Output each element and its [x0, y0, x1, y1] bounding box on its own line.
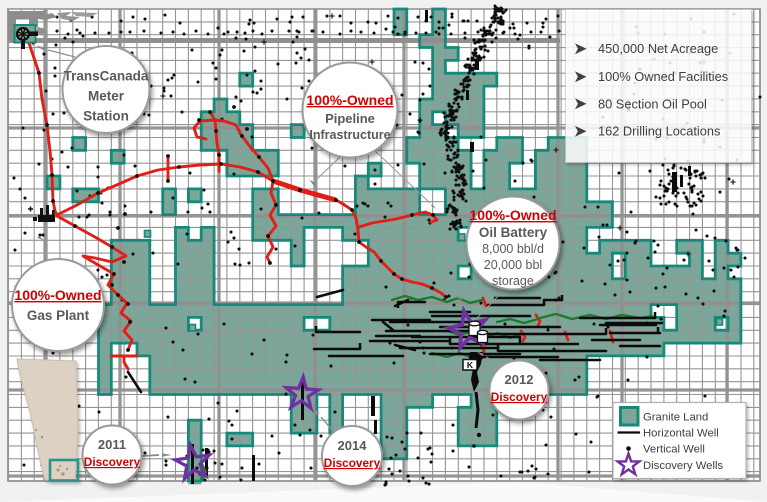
- svg-text:Pipeline: Pipeline: [325, 111, 375, 126]
- svg-text:➤: ➤: [574, 69, 587, 86]
- svg-text:Discovery: Discovery: [84, 455, 141, 469]
- svg-text:Gas Plant: Gas Plant: [27, 308, 90, 323]
- svg-text:2012: 2012: [505, 372, 534, 387]
- svg-text:100%-Owned: 100%-Owned: [469, 207, 556, 223]
- svg-text:Discovery: Discovery: [491, 390, 548, 404]
- svg-text:Horizontal Well: Horizontal Well: [643, 428, 719, 440]
- svg-text:Infrastructure: Infrastructure: [309, 128, 390, 142]
- svg-text:80 Section Oil Pool: 80 Section Oil Pool: [598, 96, 707, 111]
- svg-text:TransCanada: TransCanada: [64, 69, 149, 84]
- svg-text:Vertical Well: Vertical Well: [643, 444, 705, 456]
- svg-text:Granite Land: Granite Land: [643, 412, 708, 424]
- svg-text:100%-Owned: 100%-Owned: [14, 287, 101, 303]
- svg-text:2014: 2014: [338, 438, 368, 453]
- svg-text:Discovery Wells: Discovery Wells: [643, 460, 723, 472]
- svg-text:2011: 2011: [98, 437, 126, 452]
- svg-text:Oil Battery: Oil Battery: [479, 225, 548, 240]
- svg-text:100% Owned Facilities: 100% Owned Facilities: [598, 69, 728, 84]
- svg-text:8,000 bbl/d: 8,000 bbl/d: [482, 242, 544, 256]
- svg-text:➤: ➤: [574, 41, 587, 58]
- svg-text:K: K: [467, 360, 474, 370]
- svg-text:storage: storage: [492, 274, 534, 288]
- svg-text:450,000 Net Acreage: 450,000 Net Acreage: [598, 41, 718, 56]
- svg-text:➤: ➤: [574, 123, 587, 140]
- svg-text:➤: ➤: [574, 96, 587, 113]
- svg-text:Discovery: Discovery: [324, 456, 381, 470]
- svg-text:100%-Owned: 100%-Owned: [306, 92, 393, 108]
- svg-text:20,000 bbl: 20,000 bbl: [484, 258, 542, 272]
- svg-text:Station: Station: [83, 109, 129, 124]
- svg-text:162 Drilling Locations: 162 Drilling Locations: [598, 124, 720, 139]
- svg-text:Meter: Meter: [88, 89, 125, 104]
